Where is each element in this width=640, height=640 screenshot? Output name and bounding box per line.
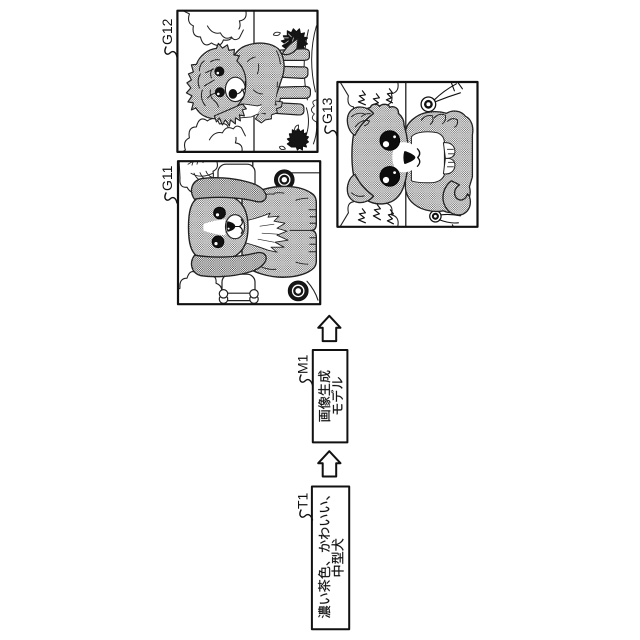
svg-text:G13: G13 [319,97,335,124]
svg-text:G12: G12 [159,18,175,45]
svg-text:M1: M1 [295,354,311,374]
svg-text:G11: G11 [159,165,175,191]
svg-text:T1: T1 [295,492,311,509]
